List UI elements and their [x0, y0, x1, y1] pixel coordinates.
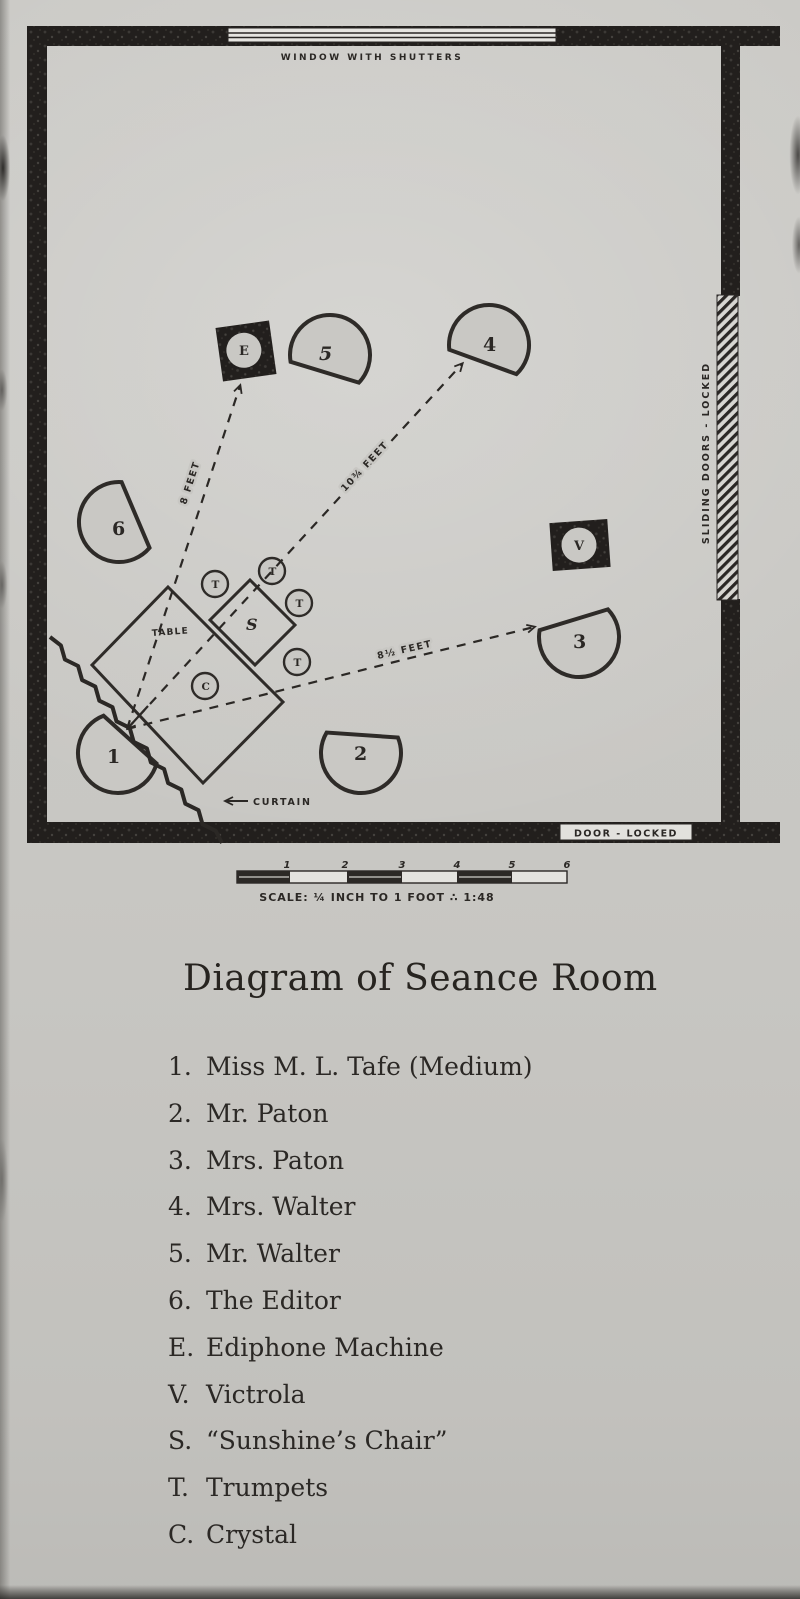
legend-label: Victrola: [206, 1380, 306, 1409]
legend-item-T: T. Trumpets: [168, 1473, 533, 1520]
furniture: [61, 294, 628, 810]
legend-key: 5.: [168, 1239, 206, 1268]
scale-caption: SCALE: ¼ INCH TO 1 FOOT ∴ 1:48: [259, 891, 494, 904]
scanned-page: DOOR - LOCKED WINDOW WITH SHUTTERS SLIDI…: [0, 0, 800, 1599]
sunshine-chair-letter: S: [246, 615, 258, 634]
scale-tick-2: 2: [342, 860, 349, 871]
page-title: Diagram of Seance Room: [183, 958, 653, 999]
legend-key: 6.: [168, 1286, 206, 1315]
legend-key: 2.: [168, 1099, 206, 1128]
door: DOOR - LOCKED: [560, 824, 692, 840]
chair-2-number: 2: [354, 743, 367, 765]
scale-tick-4: 4: [453, 860, 461, 871]
sliding-doors-label: SLIDING DOORS - LOCKED: [701, 362, 712, 544]
scan-artifact-right-smudge: [784, 95, 800, 285]
legend-key: 3.: [168, 1146, 206, 1175]
legend-list: 1. Miss M. L. Tafe (Medium) 2. Mr. Paton…: [168, 1052, 533, 1567]
legend-label: Mr. Walter: [206, 1239, 340, 1268]
ediphone-letter: E: [239, 344, 249, 359]
scan-artifact-left-edge: [0, 0, 12, 1599]
scale-tick-1: 1: [284, 860, 291, 871]
curtain-line: [50, 637, 222, 843]
legend-label: Mrs. Paton: [206, 1146, 344, 1175]
trumpet-1-letter: T: [212, 579, 220, 591]
window-with-shutters: [228, 28, 556, 42]
legend-label: “Sunshine’s Chair”: [206, 1426, 448, 1455]
wall-right-lower: [721, 599, 740, 843]
trumpet-2-letter: T: [269, 566, 277, 578]
legend-label: Miss M. L. Tafe (Medium): [206, 1052, 533, 1081]
legend-key: V.: [168, 1380, 206, 1409]
chair-6-number: 6: [112, 518, 125, 540]
wall-left: [27, 26, 47, 843]
measurement-8ft: 8 FEET: [178, 460, 202, 506]
trumpet-4-letter: T: [294, 657, 302, 669]
window-label: WINDOW WITH SHUTTERS: [281, 53, 463, 63]
chair-1-number: 1: [107, 746, 120, 768]
legend-item-3: 3. Mrs. Paton: [168, 1146, 533, 1193]
curtain-label: CURTAIN: [253, 797, 312, 808]
chair-3-number: 3: [573, 631, 586, 653]
measurement-lines: [127, 364, 534, 729]
victrola-letter: V: [573, 539, 585, 554]
crystal-letter: C: [202, 681, 210, 693]
scale-bar: 1 2 3 4 5 6 SCALE: ¼ INCH TO 1 FOOT ∴ 1:…: [237, 860, 571, 904]
legend-item-2: 2. Mr. Paton: [168, 1099, 533, 1146]
legend-key: 4.: [168, 1192, 206, 1221]
legend-label: Crystal: [206, 1520, 297, 1549]
trumpet-3-letter: T: [296, 598, 304, 610]
legend-item-4: 4. Mrs. Walter: [168, 1192, 533, 1239]
sliding-doors: [717, 295, 738, 600]
measurement-10ft: 10¾ FEET: [339, 440, 391, 495]
legend-item-1: 1. Miss M. L. Tafe (Medium): [168, 1052, 533, 1099]
room-walls: DOOR - LOCKED: [27, 26, 780, 843]
legend-item-5: 5. Mr. Walter: [168, 1239, 533, 1286]
chair-5-number: 5: [319, 343, 332, 365]
scale-tick-3: 3: [399, 860, 406, 871]
legend-key: C.: [168, 1520, 206, 1549]
legend-item-6: 6. The Editor: [168, 1286, 533, 1333]
legend-key: E.: [168, 1333, 206, 1362]
legend-key: S.: [168, 1426, 206, 1455]
legend-item-E: E. Ediphone Machine: [168, 1333, 533, 1380]
legend-key: 1.: [168, 1052, 206, 1081]
wall-right-upper: [721, 26, 740, 296]
chair-6: [67, 478, 152, 574]
scan-artifact-bottom-edge: [0, 1585, 800, 1599]
door-label: DOOR - LOCKED: [574, 829, 678, 840]
measurement-8half-ft: 8½ FEET: [376, 639, 433, 662]
legend-item-C: C. Crystal: [168, 1520, 533, 1567]
seance-room-floorplan: DOOR - LOCKED WINDOW WITH SHUTTERS SLIDI…: [0, 0, 800, 915]
legend-label: Ediphone Machine: [206, 1333, 444, 1362]
legend-label: Trumpets: [206, 1473, 328, 1502]
legend-label: The Editor: [206, 1286, 341, 1315]
chair-5: [286, 305, 379, 384]
legend-item-V: V. Victrola: [168, 1380, 533, 1427]
legend-item-S: S. “Sunshine’s Chair”: [168, 1426, 533, 1473]
legend-label: Mr. Paton: [206, 1099, 329, 1128]
scale-tick-5: 5: [509, 860, 516, 871]
legend-key: T.: [168, 1473, 206, 1502]
chair-4-number: 4: [483, 334, 496, 356]
legend-label: Mrs. Walter: [206, 1192, 356, 1221]
table-label: TABLE: [152, 626, 190, 639]
scale-tick-6: 6: [564, 860, 571, 871]
